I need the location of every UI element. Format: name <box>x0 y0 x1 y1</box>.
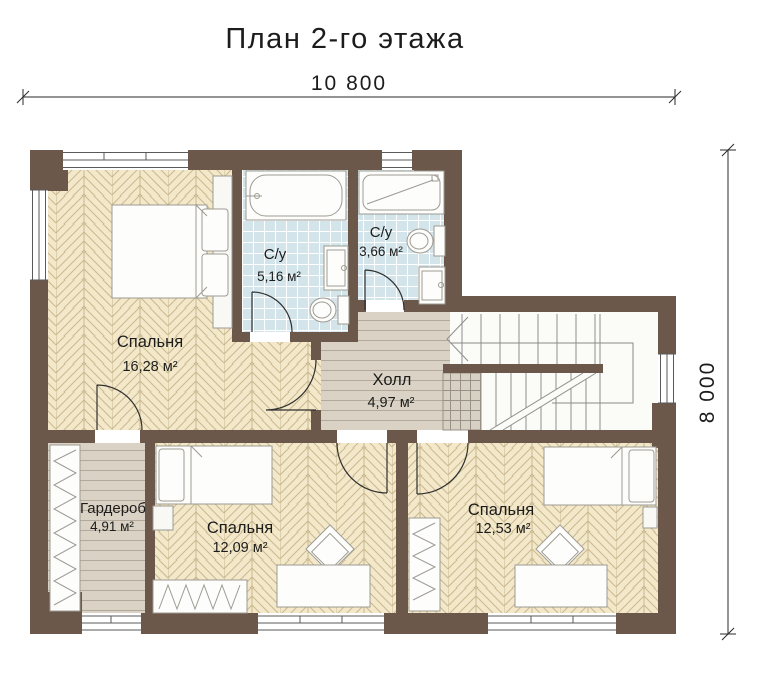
wall-bedroom1-bath1 <box>232 170 242 342</box>
closet <box>153 580 247 613</box>
bedroom-1-label: Спальня <box>117 333 183 351</box>
bathroom-1-area: 5,16 м² <box>257 269 301 284</box>
floor-plan-page: Спальня 16,28 м² С/у 5,16 м² С/у 3,66 м²… <box>0 0 763 688</box>
bedside-table <box>153 506 173 530</box>
bedroom-3-area: 12,53 м² <box>475 521 530 537</box>
stair-winder-steps <box>443 373 481 430</box>
dimension-width-label: 10 800 <box>311 72 387 95</box>
bedroom-1-area: 16,28 м² <box>122 359 177 375</box>
window-top-bathroom2 <box>382 150 412 170</box>
window-right-stairwell <box>658 354 676 403</box>
hall-label: Холл <box>373 371 412 389</box>
bed-headboard <box>213 176 232 328</box>
wardrobe-area: 4,91 м² <box>90 519 134 534</box>
toilet <box>310 296 349 324</box>
bed-mattress <box>112 205 207 298</box>
bathroom-2-label: С/у <box>370 224 393 241</box>
bathtub <box>246 171 346 220</box>
toilet <box>407 226 445 256</box>
closet <box>409 518 440 611</box>
sink <box>419 267 445 304</box>
floor-plan-drawing: Спальня 16,28 м² С/у 5,16 м² С/у 3,66 м²… <box>0 0 763 688</box>
bathroom-1-label: С/у <box>264 246 287 263</box>
sink <box>324 246 348 290</box>
pillow <box>159 449 184 501</box>
step-wall-vertical <box>444 150 462 312</box>
dimension-height-label: 8 000 <box>696 361 719 424</box>
pillow <box>202 254 228 296</box>
window-left-bedroom1 <box>30 190 48 280</box>
page-title: План 2-го этажа <box>225 23 464 55</box>
shower-tray <box>359 171 444 214</box>
bathroom-2-area: 3,66 м² <box>359 244 403 259</box>
bedside-table <box>643 507 657 528</box>
bedroom-3-label: Спальня <box>468 501 534 519</box>
window-top-bedroom1 <box>63 150 188 170</box>
wardrobe-label: Гардероб <box>80 500 146 517</box>
bedroom-2-area: 12,09 м² <box>212 540 267 556</box>
wall-bedroom2-bedroom3 <box>396 443 408 613</box>
window-bottom-wardrobe <box>82 613 141 634</box>
pillow <box>629 450 654 502</box>
desk <box>277 565 370 607</box>
hall-area: 4,97 м² <box>367 395 414 411</box>
wardrobe-shelving <box>50 445 80 611</box>
window-bottom-bedroom3 <box>488 613 616 634</box>
desk <box>515 565 607 607</box>
window-bottom-bedroom2 <box>258 613 384 634</box>
stair-mid-rail <box>443 364 603 373</box>
bedroom-2-label: Спальня <box>207 519 273 537</box>
step-wall-horizontal <box>444 296 676 312</box>
